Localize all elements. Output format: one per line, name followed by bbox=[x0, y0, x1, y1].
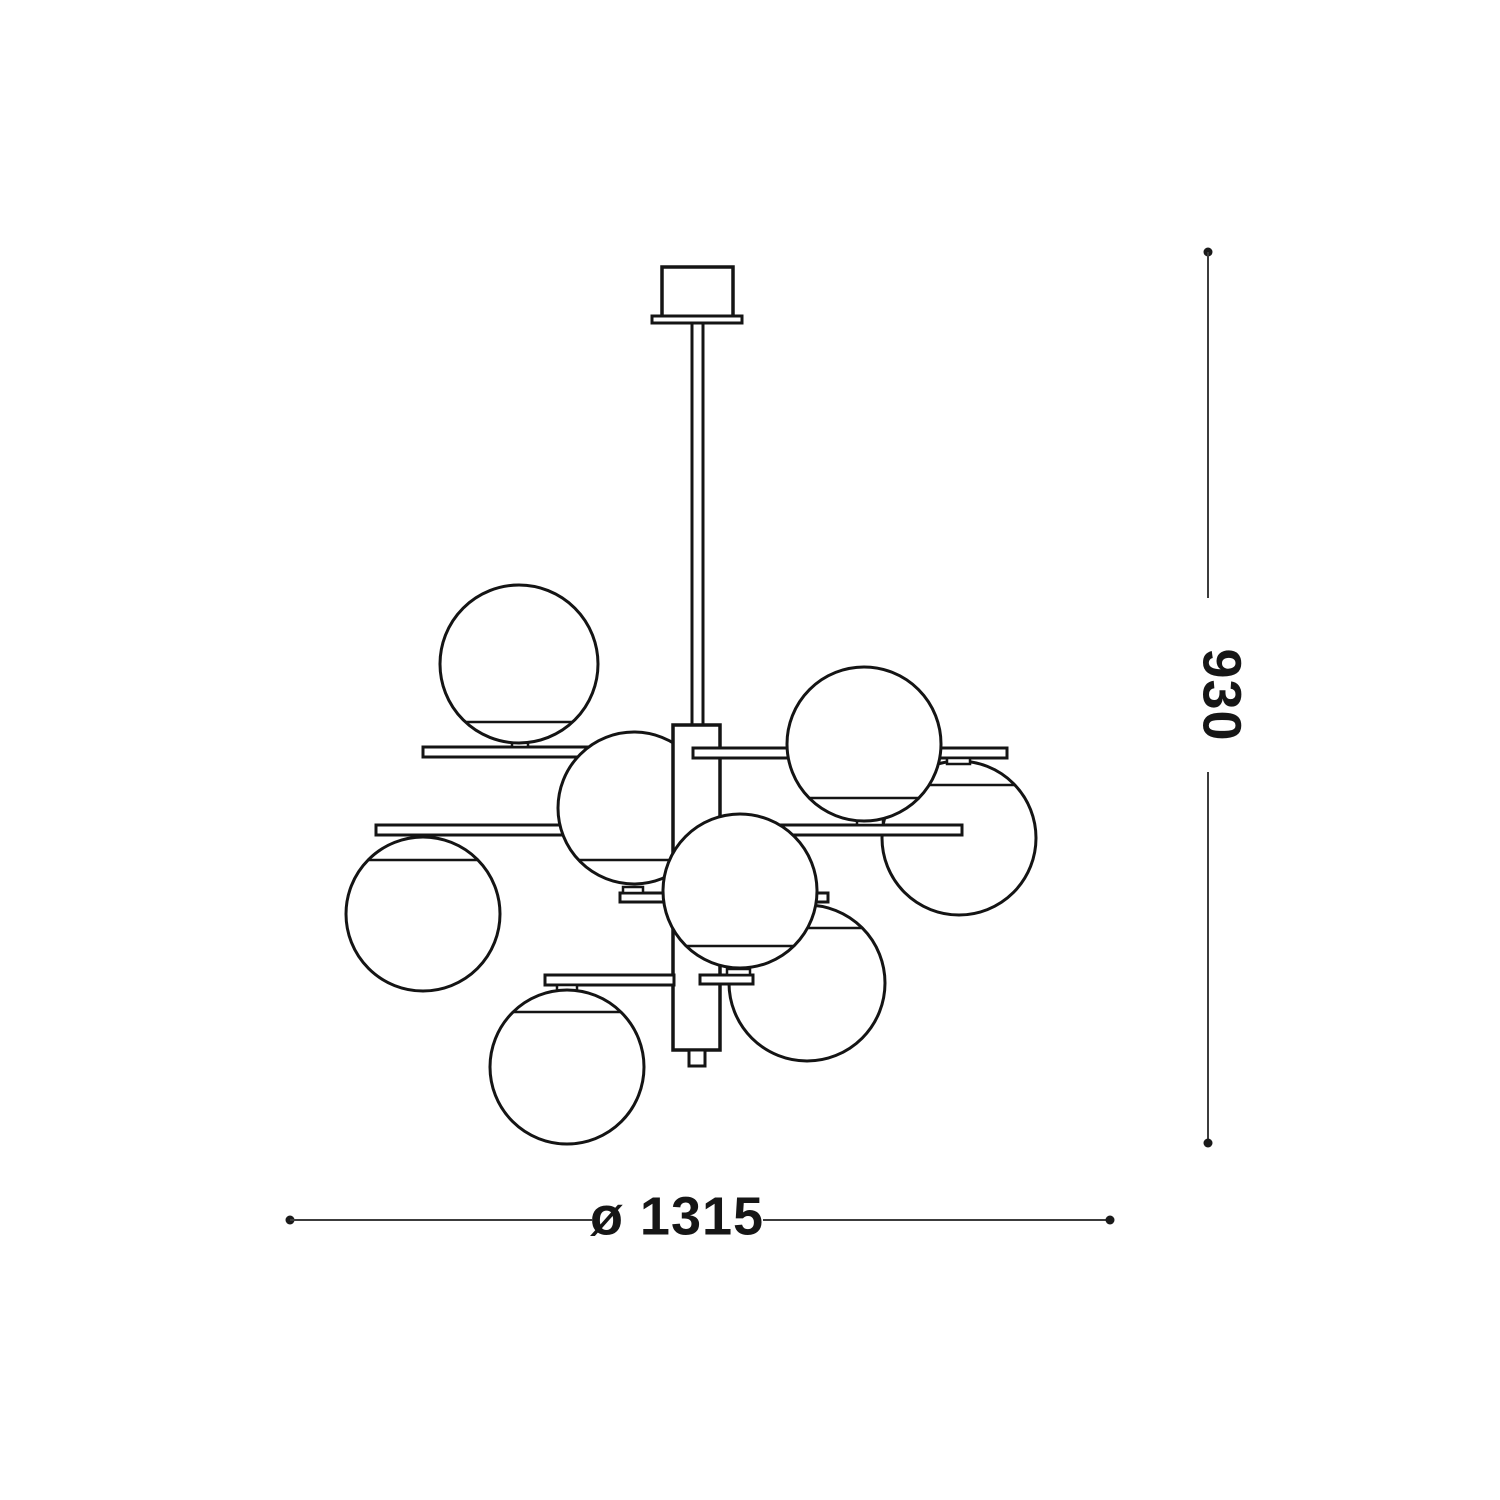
canopy-plate bbox=[652, 316, 742, 323]
globe-holder-far-right bbox=[947, 758, 970, 764]
globe-left-middle bbox=[346, 837, 500, 991]
globe-lower-left bbox=[490, 990, 644, 1144]
diameter-dimension-label: ø 1315 bbox=[590, 1186, 764, 1246]
globe-holder-middle bbox=[623, 887, 643, 893]
hub-bottom-finial bbox=[689, 1050, 705, 1066]
globe-holder-front bbox=[727, 969, 750, 975]
dimension-endpoint-dot bbox=[1204, 1139, 1213, 1148]
height-dimension: 930 bbox=[1192, 248, 1252, 1148]
diameter-dimension: ø 1315 bbox=[286, 1186, 1115, 1246]
ceiling-canopy bbox=[662, 267, 733, 317]
technical-drawing-canvas: 930 ø 1315 bbox=[0, 0, 1500, 1500]
globe-top-right bbox=[787, 667, 941, 821]
drop-stem bbox=[692, 322, 703, 727]
globe-top-left bbox=[440, 585, 598, 743]
chandelier-drawing bbox=[346, 267, 1036, 1144]
chandelier-dimension-diagram: 930 ø 1315 bbox=[0, 0, 1500, 1500]
height-dimension-label: 930 bbox=[1192, 648, 1252, 741]
arm-tier3-right bbox=[700, 975, 753, 984]
globe-front bbox=[663, 814, 817, 968]
arm-tier3-left bbox=[545, 975, 674, 985]
dimension-endpoint-dot bbox=[1106, 1216, 1115, 1225]
